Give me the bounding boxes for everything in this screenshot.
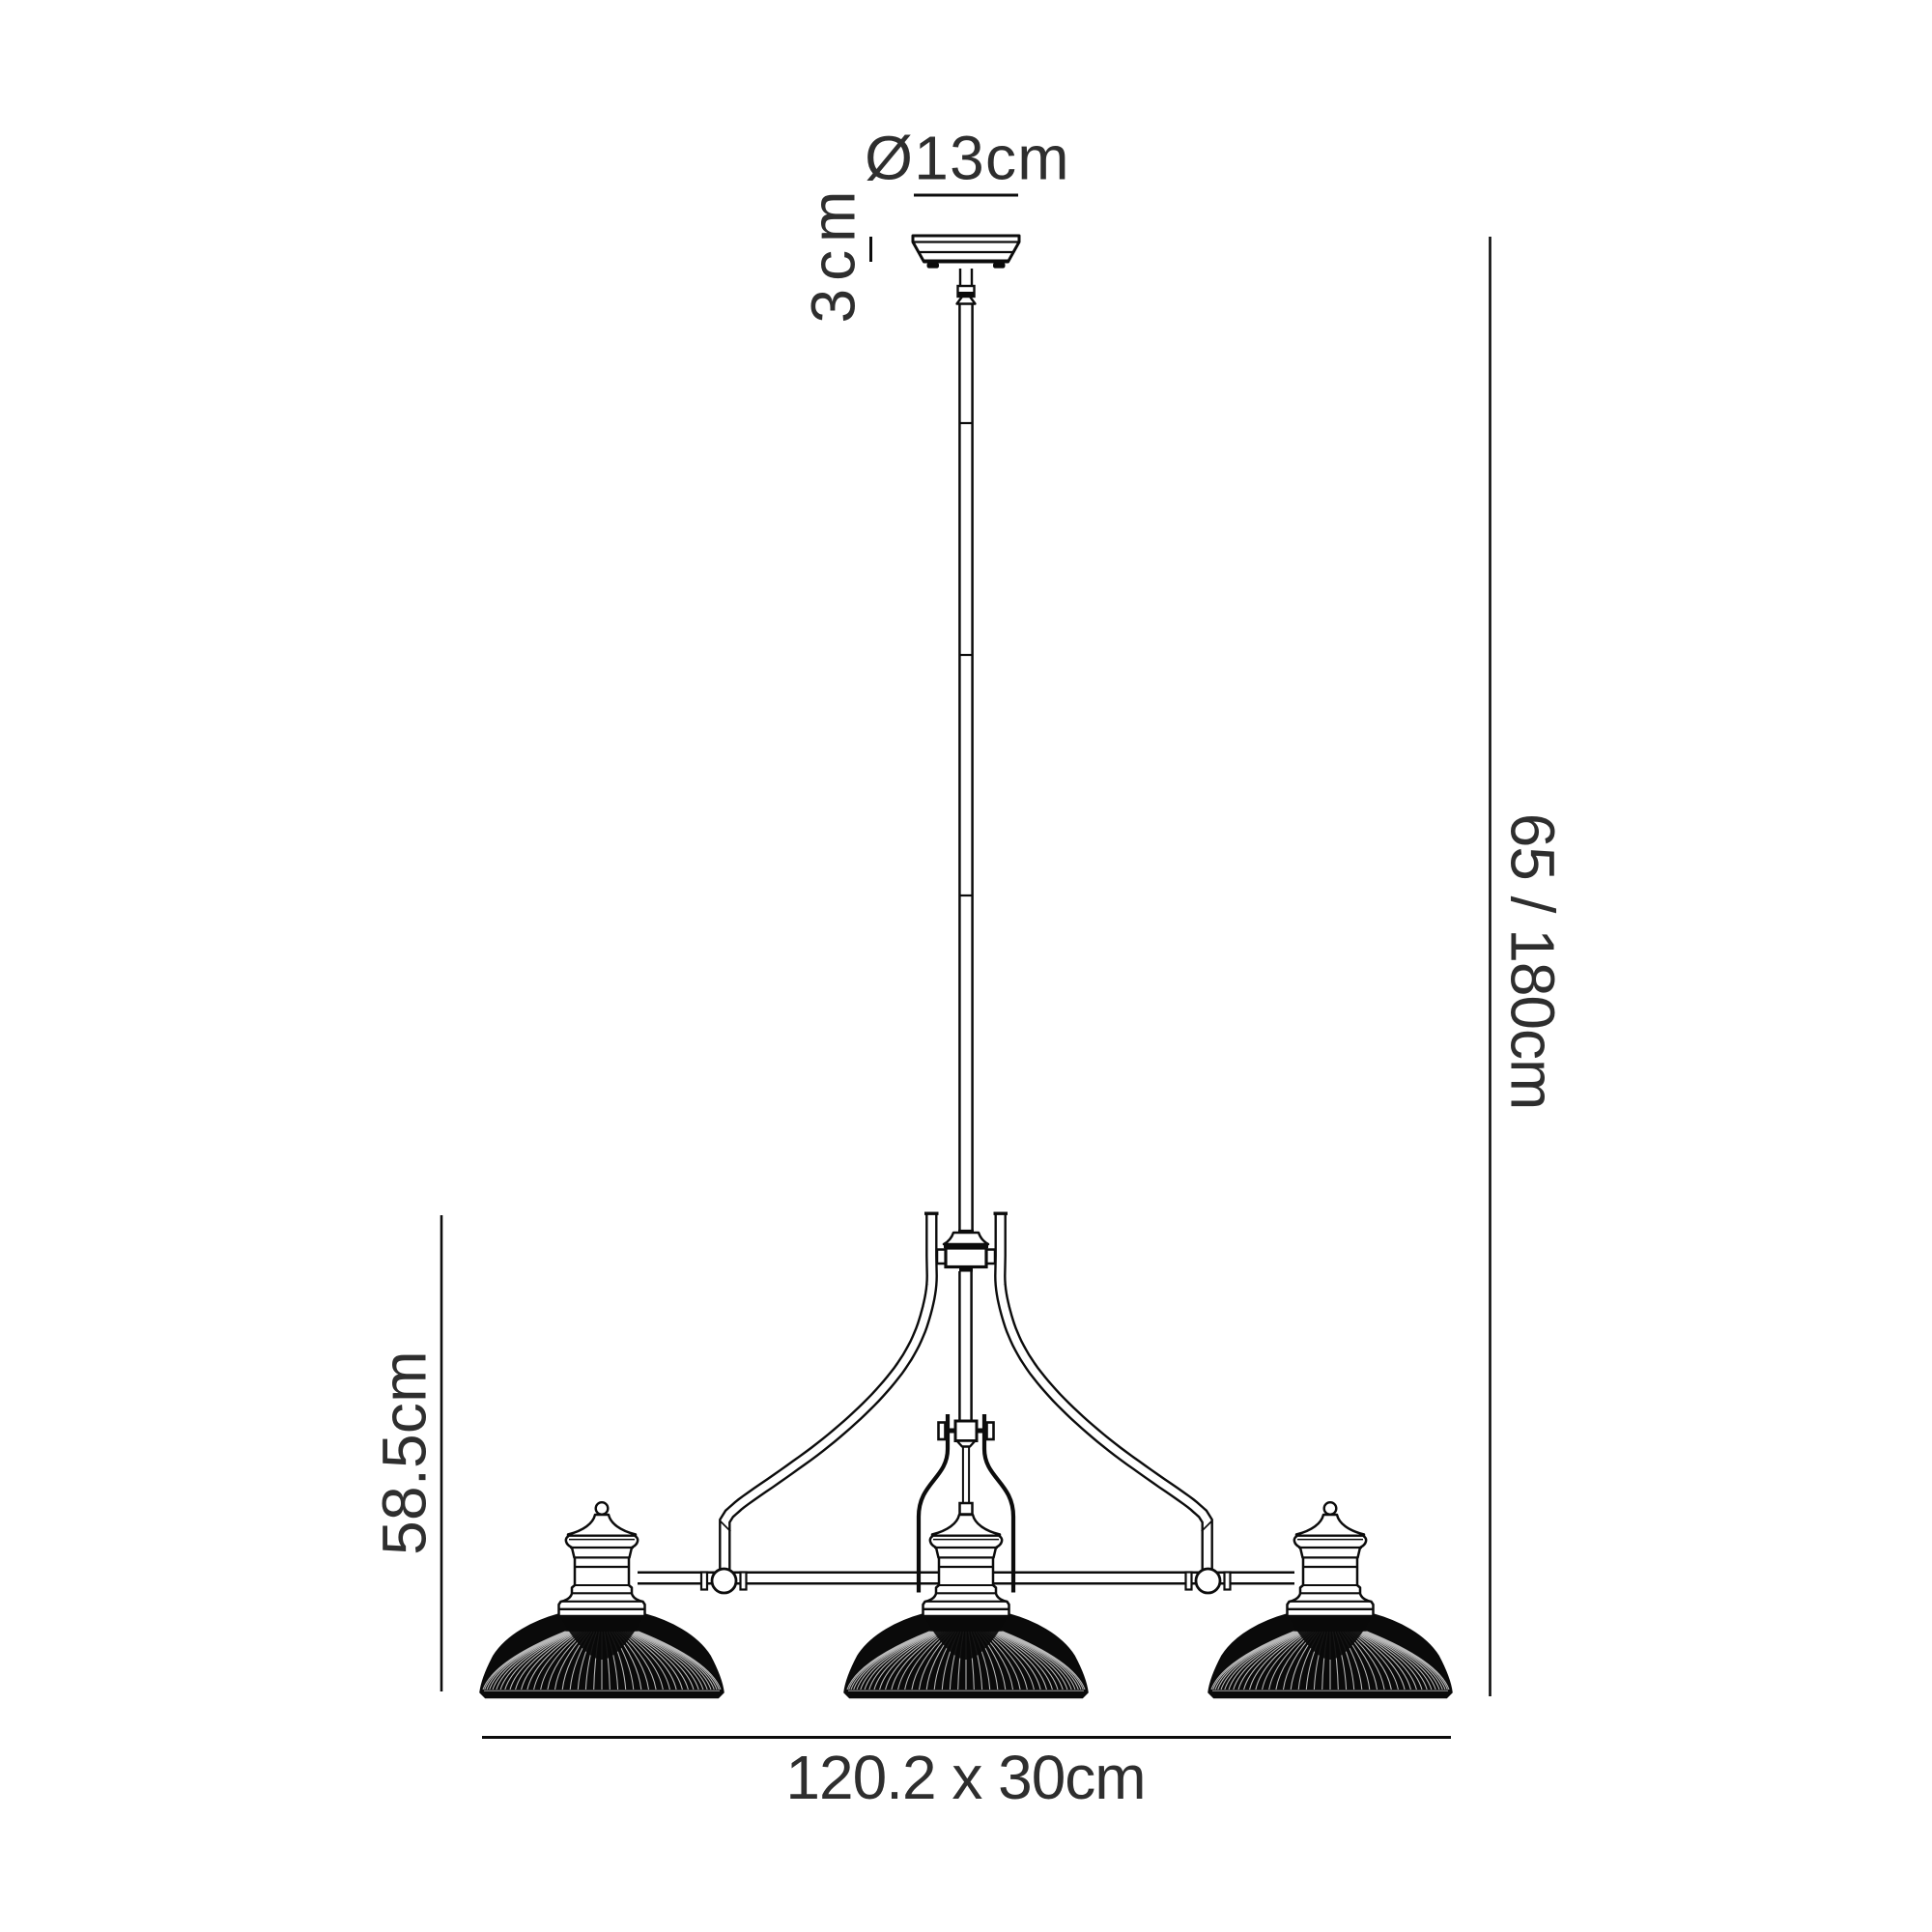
svg-text:58.5cm: 58.5cm (370, 1350, 440, 1555)
svg-text:65 / 180cm: 65 / 180cm (1498, 813, 1568, 1110)
svg-text:120.2 x 30cm: 120.2 x 30cm (785, 1743, 1145, 1812)
svg-text:Ø13cm: Ø13cm (865, 124, 1070, 193)
svg-text:3cm: 3cm (799, 184, 868, 324)
